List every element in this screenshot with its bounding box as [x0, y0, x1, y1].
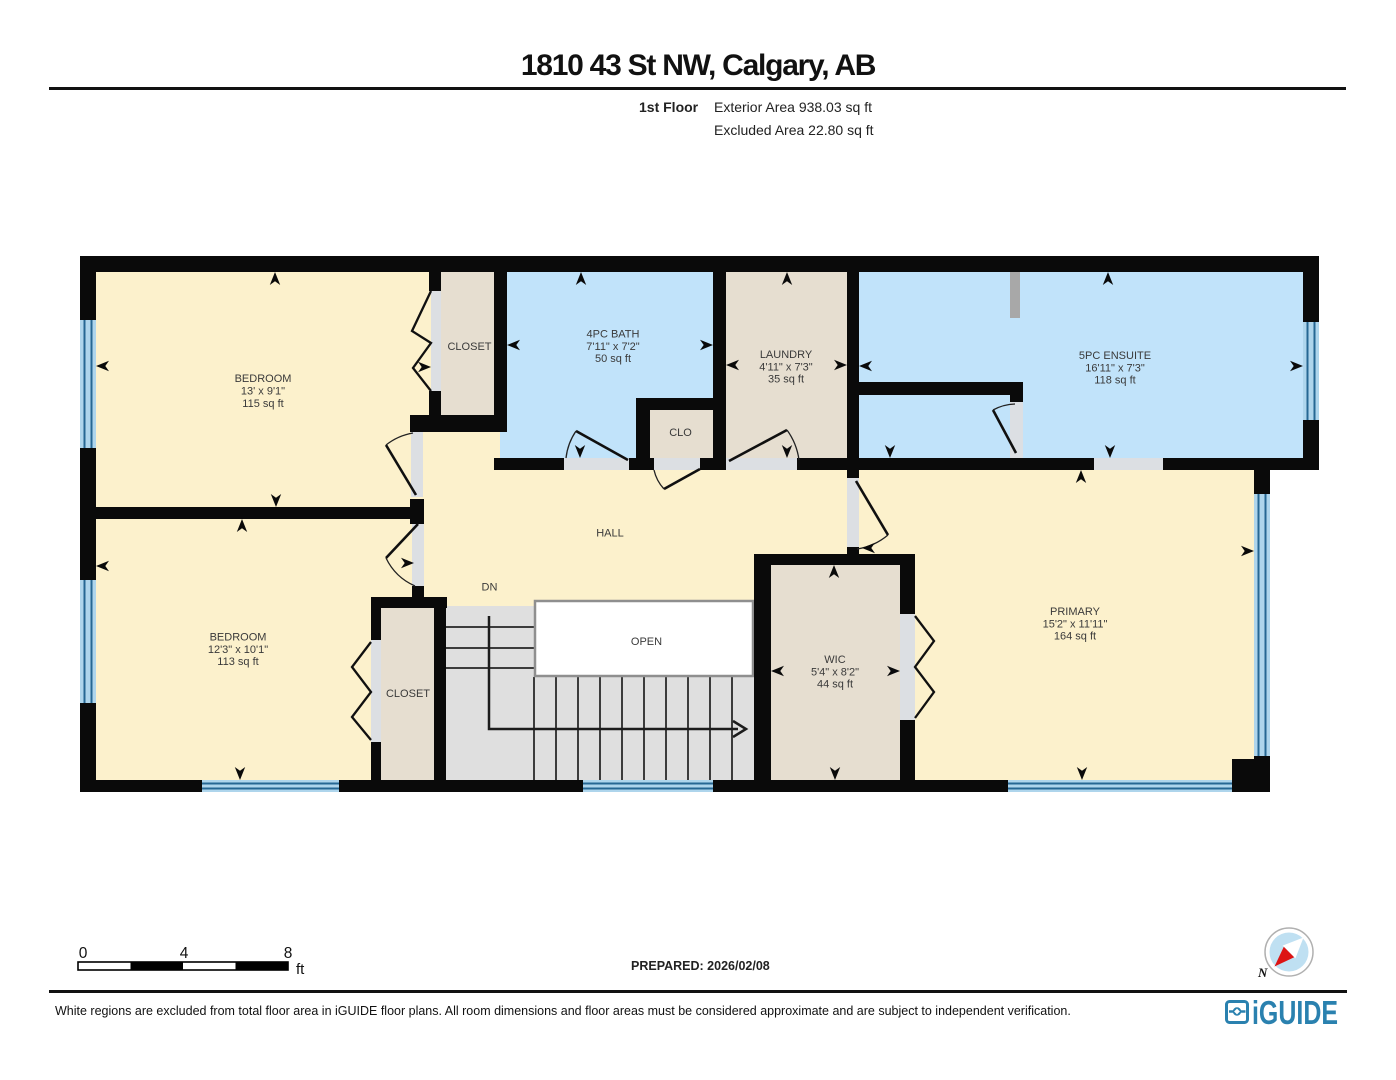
- svg-text:WIC: WIC: [824, 654, 845, 666]
- svg-text:113 sq ft: 113 sq ft: [217, 656, 258, 668]
- svg-text:35 sq ft: 35 sq ft: [768, 374, 804, 386]
- svg-text:44 sq ft: 44 sq ft: [817, 679, 853, 691]
- svg-text:50 sq ft: 50 sq ft: [595, 353, 631, 365]
- svg-text:CLOSET: CLOSET: [447, 341, 491, 353]
- svg-text:ft: ft: [296, 961, 305, 978]
- svg-text:15'2" x 11'11": 15'2" x 11'11": [1043, 618, 1108, 630]
- svg-text:0: 0: [79, 945, 88, 962]
- svg-text:16'11" x 7'3": 16'11" x 7'3": [1085, 362, 1145, 374]
- svg-text:4PC BATH: 4PC BATH: [587, 329, 640, 341]
- svg-text:115 sq ft: 115 sq ft: [242, 398, 283, 410]
- svg-text:iGUIDE: iGUIDE: [1252, 994, 1338, 1031]
- svg-text:OPEN: OPEN: [631, 636, 662, 648]
- svg-text:CLO: CLO: [669, 427, 692, 439]
- svg-text:8: 8: [284, 945, 293, 962]
- svg-text:4: 4: [180, 945, 189, 962]
- svg-text:CLOSET: CLOSET: [386, 688, 430, 700]
- svg-text:118 sq ft: 118 sq ft: [1094, 375, 1135, 387]
- svg-text:HALL: HALL: [596, 528, 624, 540]
- svg-text:PREPARED: 2026/02/08: PREPARED: 2026/02/08: [631, 959, 770, 973]
- svg-text:White regions are excluded fro: White regions are excluded from total fl…: [55, 1004, 1071, 1018]
- svg-text:LAUNDRY: LAUNDRY: [760, 349, 813, 361]
- svg-text:7'11" x 7'2": 7'11" x 7'2": [586, 341, 639, 353]
- svg-text:PRIMARY: PRIMARY: [1050, 606, 1101, 618]
- svg-text:164 sq ft: 164 sq ft: [1054, 631, 1096, 643]
- svg-text:N: N: [1257, 965, 1268, 980]
- svg-text:BEDROOM: BEDROOM: [235, 373, 292, 385]
- svg-text:4'11" x 7'3": 4'11" x 7'3": [759, 361, 812, 373]
- svg-text:5'4" x 8'2": 5'4" x 8'2": [811, 666, 859, 678]
- svg-text:BEDROOM: BEDROOM: [210, 632, 267, 644]
- svg-text:12'3" x 10'1": 12'3" x 10'1": [208, 644, 268, 656]
- svg-text:5PC ENSUITE: 5PC ENSUITE: [1079, 350, 1151, 362]
- svg-text:DN: DN: [482, 582, 498, 594]
- svg-text:13' x 9'1": 13' x 9'1": [241, 385, 285, 397]
